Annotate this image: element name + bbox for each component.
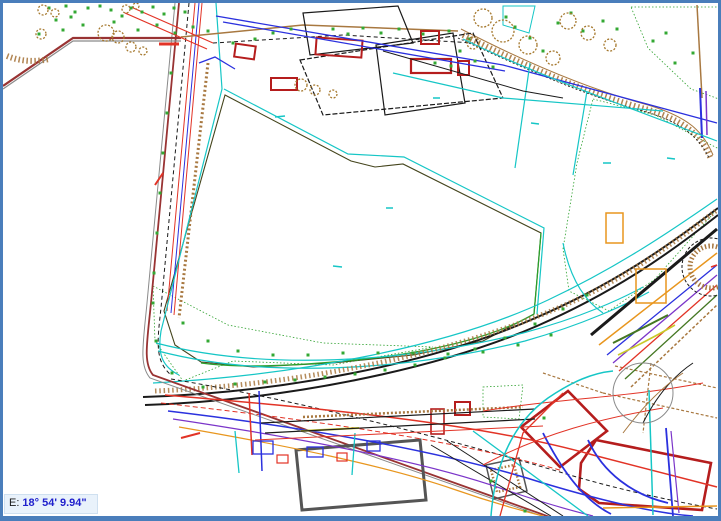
boundary-layer <box>3 7 473 438</box>
road-network-layer <box>143 3 718 516</box>
coordinate-label: E: <box>9 497 19 509</box>
coordinate-value: 18° 54' 9.94" <box>22 497 86 509</box>
vegetation-layer <box>483 6 718 419</box>
parcel-polygon <box>164 95 541 367</box>
parcel-green-edge <box>201 233 541 366</box>
cad-viewport-window: E:18° 54' 9.94" <box>0 0 721 521</box>
coordinate-tooltip: E:18° 54' 9.94" <box>4 494 98 514</box>
map-canvas[interactable] <box>3 3 718 516</box>
building-pink-b <box>579 440 711 510</box>
parcel-highlight[interactable] <box>164 95 541 367</box>
